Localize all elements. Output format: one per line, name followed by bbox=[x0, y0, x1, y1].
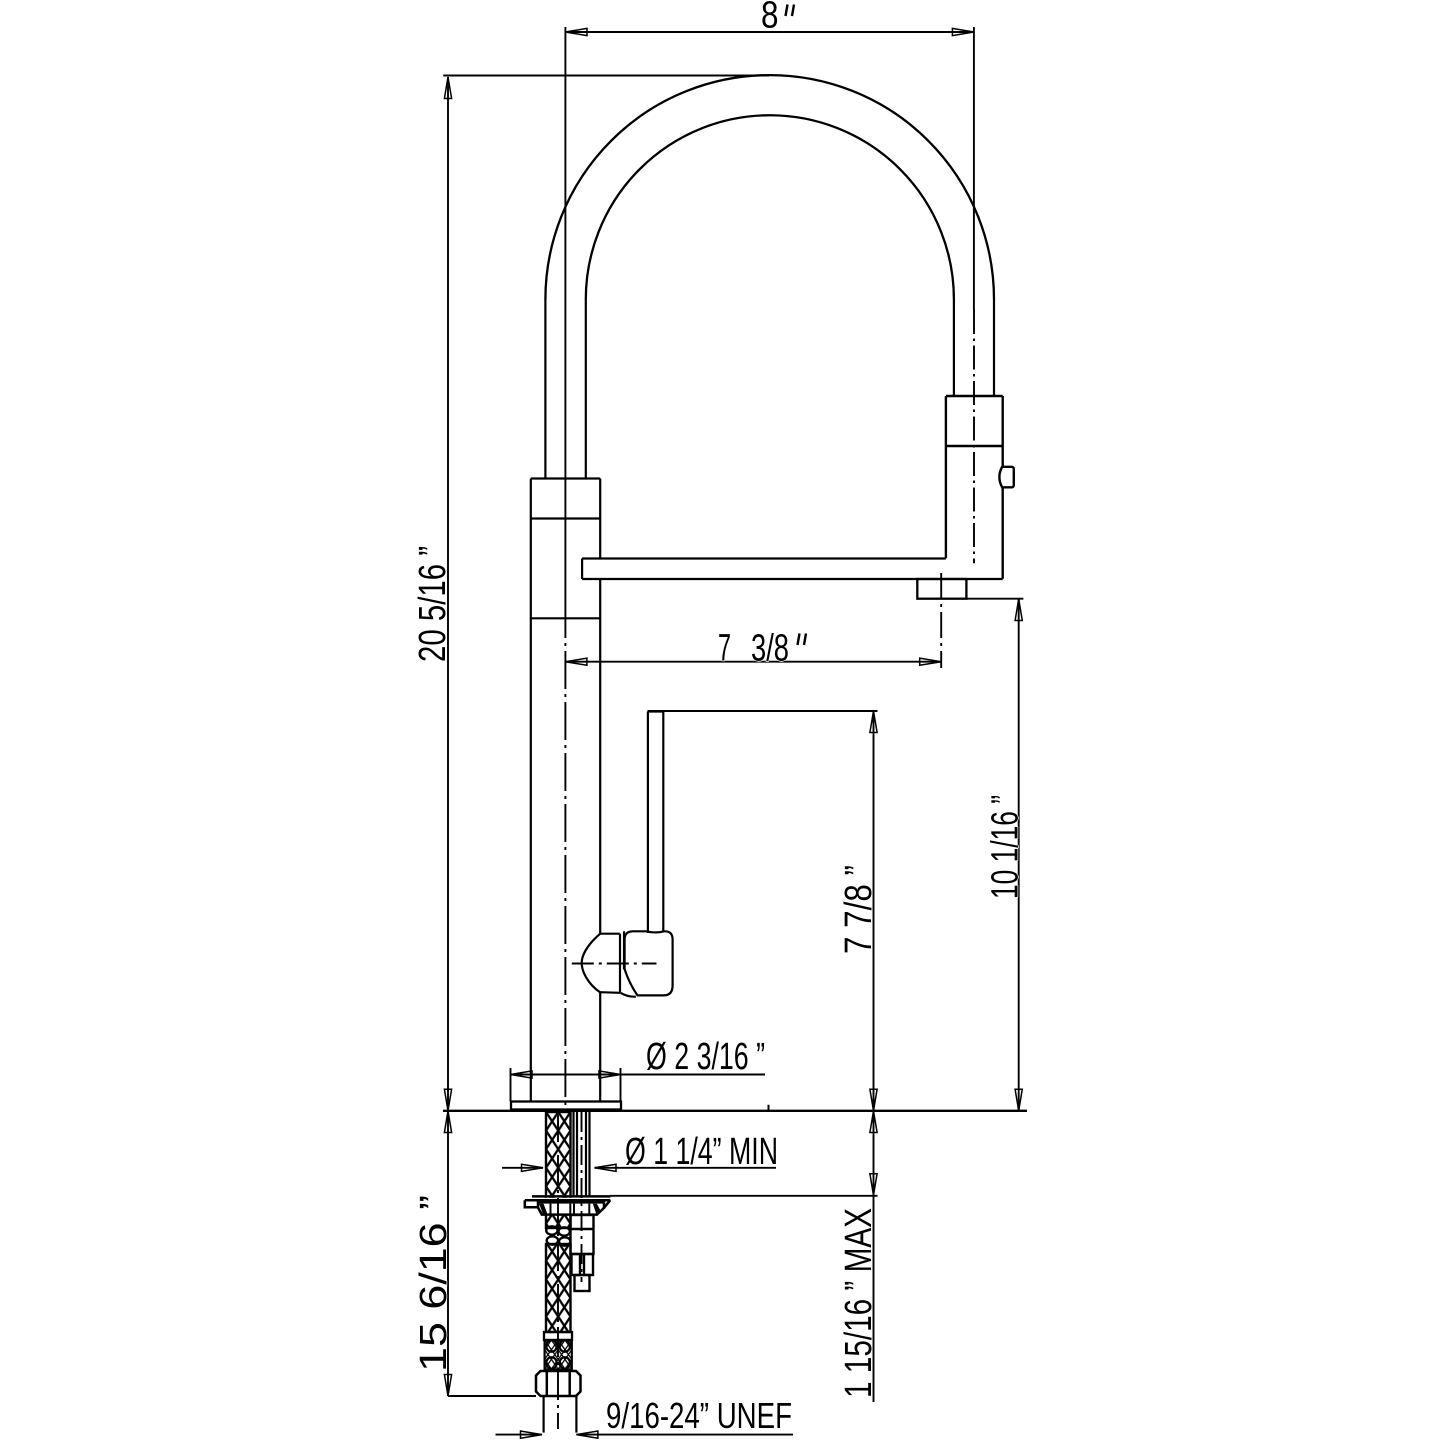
svg-text:3/8: 3/8 bbox=[751, 628, 789, 670]
svg-text:8: 8 bbox=[761, 0, 779, 37]
svg-text:9/16-24” UNEF: 9/16-24” UNEF bbox=[606, 1395, 792, 1436]
svg-text:7: 7 bbox=[718, 628, 731, 670]
svg-text:1 15/16 ” MAX: 1 15/16 ” MAX bbox=[838, 1208, 880, 1398]
svg-text:Ø 2 3/16 ”: Ø 2 3/16 ” bbox=[646, 1036, 765, 1078]
svg-text:Ø 1 1/4” MIN: Ø 1 1/4” MIN bbox=[625, 1131, 778, 1173]
svg-text:7 7/8 ”: 7 7/8 ” bbox=[838, 865, 880, 954]
svg-text:15 6/16 ”: 15 6/16 ” bbox=[413, 1195, 455, 1372]
svg-text:10 1/16 ”: 10 1/16 ” bbox=[985, 795, 1027, 899]
svg-text:20 5/16 ”: 20 5/16 ” bbox=[412, 546, 454, 662]
